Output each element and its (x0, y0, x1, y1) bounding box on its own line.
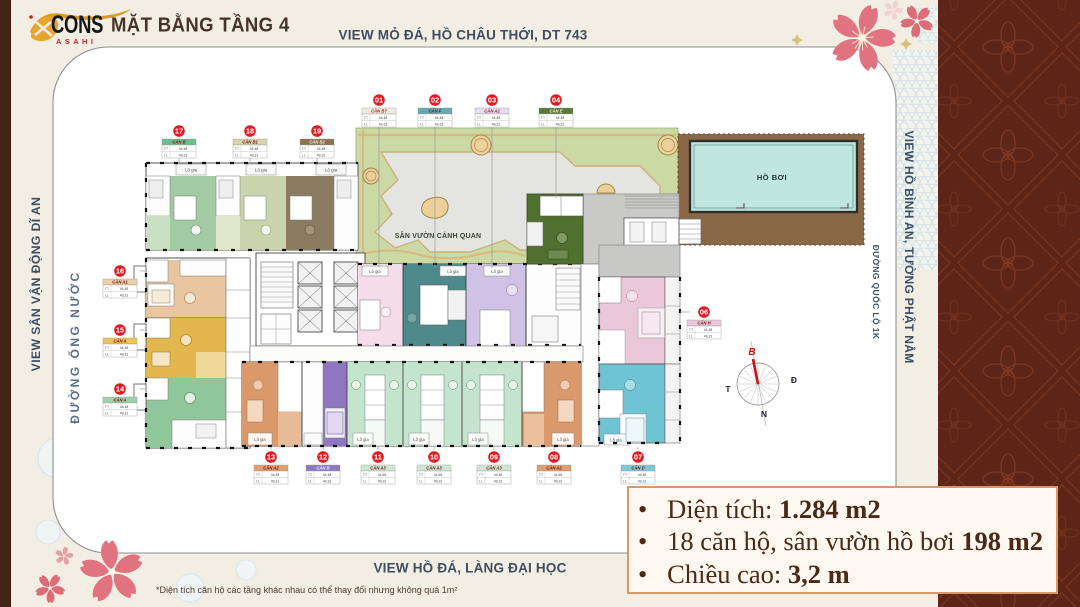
svg-text:Đ: Đ (791, 375, 797, 385)
svg-text:LL: LL (308, 480, 312, 484)
svg-text:LL: LL (164, 154, 168, 158)
svg-text:44,48: 44,48 (554, 473, 563, 477)
svg-text:LL: LL (689, 335, 693, 339)
svg-text:49,31: 49,31 (492, 123, 501, 127)
svg-text:TT: TT (164, 147, 168, 151)
svg-text:Lô gia: Lô gia (413, 437, 425, 442)
svg-text:49,31: 49,31 (120, 353, 129, 357)
svg-text:CĂN A1: CĂN A1 (112, 280, 128, 285)
svg-text:CĂN A3: CĂN A3 (486, 466, 502, 471)
svg-text:TT: TT (302, 147, 306, 151)
svg-text:N: N (761, 409, 767, 419)
svg-text:44,48: 44,48 (492, 116, 501, 120)
svg-text:12: 12 (319, 453, 327, 462)
svg-text:TT: TT (689, 328, 693, 332)
svg-text:06: 06 (700, 308, 708, 317)
svg-text:49,31: 49,31 (435, 123, 444, 127)
svg-text:Lô gia: Lô gia (185, 168, 198, 173)
svg-text:44,48: 44,48 (250, 147, 259, 151)
svg-text:CĂN A: CĂN A (113, 339, 126, 344)
svg-text:TT: TT (539, 473, 543, 477)
svg-text:04: 04 (552, 96, 561, 105)
svg-text:CĂN E: CĂN E (549, 109, 562, 114)
svg-text:44,48: 44,48 (704, 328, 713, 332)
svg-text:44,48: 44,48 (435, 116, 444, 120)
svg-text:44,48: 44,48 (120, 287, 129, 291)
svg-text:HỒ BƠI: HỒ BƠI (757, 172, 787, 182)
svg-text:TT: TT (420, 116, 424, 120)
svg-text:13: 13 (267, 453, 275, 462)
svg-text:TT: TT (364, 116, 368, 120)
svg-text:CĂN A2: CĂN A2 (263, 466, 279, 471)
svg-text:44,48: 44,48 (179, 147, 188, 151)
svg-text:CĂN A3: CĂN A3 (370, 466, 386, 471)
svg-text:CĂN A: CĂN A (113, 398, 126, 403)
svg-text:49,31: 49,31 (323, 480, 332, 484)
svg-text:49,31: 49,31 (317, 154, 326, 158)
svg-text:SÂN VƯỜN CẢNH QUAN: SÂN VƯỜN CẢNH QUAN (395, 231, 482, 240)
svg-text:CĂN B?: CĂN B? (371, 109, 387, 114)
svg-text:CĂN A3: CĂN A3 (426, 466, 442, 471)
svg-text:LL: LL (235, 154, 239, 158)
svg-text:18: 18 (246, 127, 254, 136)
svg-text:TT: TT (541, 116, 545, 120)
svg-text:CĂN F: CĂN F (429, 109, 442, 114)
svg-text:49,31: 49,31 (704, 335, 713, 339)
svg-text:49,31: 49,31 (434, 480, 443, 484)
svg-text:CĂN B2: CĂN B2 (309, 140, 325, 145)
svg-text:TT: TT (308, 473, 312, 477)
svg-text:TT: TT (477, 116, 481, 120)
svg-text:Lô gia: Lô gia (472, 437, 484, 442)
svg-text:LL: LL (105, 412, 109, 416)
svg-text:CĂN B: CĂN B (172, 140, 185, 145)
svg-text:49,31: 49,31 (379, 123, 388, 127)
svg-text:44,48: 44,48 (378, 473, 387, 477)
svg-text:44,48: 44,48 (556, 116, 565, 120)
svg-text:44,48: 44,48 (638, 473, 647, 477)
svg-text:TT: TT (256, 473, 260, 477)
svg-text:44,48: 44,48 (120, 405, 129, 409)
svg-text:15: 15 (116, 326, 124, 335)
svg-text:T: T (725, 384, 731, 394)
svg-text:49,31: 49,31 (378, 480, 387, 484)
svg-text:08: 08 (550, 453, 558, 462)
svg-text:LL: LL (539, 480, 543, 484)
svg-text:TT: TT (623, 473, 627, 477)
svg-text:LL: LL (623, 480, 627, 484)
svg-text:44,48: 44,48 (323, 473, 332, 477)
svg-text:49,31: 49,31 (554, 480, 563, 484)
svg-text:LL: LL (477, 123, 481, 127)
svg-text:44,48: 44,48 (434, 473, 443, 477)
svg-text:TT: TT (419, 473, 423, 477)
svg-text:44,48: 44,48 (271, 473, 280, 477)
svg-text:02: 02 (431, 96, 439, 105)
svg-text:TT: TT (105, 405, 109, 409)
svg-text:LL: LL (479, 480, 483, 484)
svg-text:CĂN A2: CĂN A2 (484, 109, 500, 114)
svg-text:B: B (748, 347, 755, 358)
svg-text:LL: LL (105, 294, 109, 298)
svg-text:49,31: 49,31 (250, 154, 259, 158)
svg-text:17: 17 (175, 127, 183, 136)
svg-text:16: 16 (116, 267, 124, 276)
svg-text:LL: LL (420, 123, 424, 127)
svg-text:LL: LL (364, 123, 368, 127)
svg-text:TT: TT (363, 473, 367, 477)
svg-text:LL: LL (541, 123, 545, 127)
svg-text:44,48: 44,48 (379, 116, 388, 120)
svg-text:49,31: 49,31 (638, 480, 647, 484)
svg-text:49,31: 49,31 (494, 480, 503, 484)
svg-text:01: 01 (375, 96, 383, 105)
svg-text:Lô gia: Lô gia (255, 168, 268, 173)
svg-text:LL: LL (302, 154, 306, 158)
svg-text:LL: LL (105, 353, 109, 357)
svg-text:49,31: 49,31 (120, 294, 129, 298)
svg-text:10: 10 (430, 453, 438, 462)
svg-text:14: 14 (116, 385, 125, 394)
svg-text:Lô gia: Lô gia (557, 437, 569, 442)
svg-text:TT: TT (479, 473, 483, 477)
svg-text:CĂN B: CĂN B (316, 466, 329, 471)
svg-text:Lô gia: Lô gia (447, 269, 459, 274)
svg-text:44,48: 44,48 (317, 147, 326, 151)
svg-text:Lô gia: Lô gia (254, 437, 266, 442)
svg-text:11: 11 (374, 453, 382, 462)
svg-text:TT: TT (105, 287, 109, 291)
svg-text:Lô gia: Lô gia (369, 269, 381, 274)
svg-text:CĂN D: CĂN D (631, 466, 644, 471)
svg-text:44,48: 44,48 (120, 346, 129, 350)
svg-text:49,31: 49,31 (271, 480, 280, 484)
svg-text:49,31: 49,31 (179, 154, 188, 158)
svg-text:Lô gia: Lô gia (325, 168, 338, 173)
svg-text:TT: TT (105, 346, 109, 350)
svg-text:LL: LL (256, 480, 260, 484)
svg-text:Lô gia: Lô gia (610, 438, 622, 443)
svg-text:49,31: 49,31 (120, 412, 129, 416)
svg-text:49,31: 49,31 (556, 123, 565, 127)
svg-text:CĂN A2: CĂN A2 (546, 466, 562, 471)
svg-text:19: 19 (313, 127, 321, 136)
svg-text:CĂN H: CĂN H (697, 321, 711, 326)
svg-text:09: 09 (490, 453, 498, 462)
svg-text:03: 03 (488, 96, 496, 105)
svg-text:LL: LL (419, 480, 423, 484)
svg-text:44,48: 44,48 (494, 473, 503, 477)
svg-text:TT: TT (235, 147, 239, 151)
svg-text:Lô gia: Lô gia (491, 269, 503, 274)
svg-text:07: 07 (634, 453, 642, 462)
svg-text:LL: LL (363, 480, 367, 484)
svg-text:Lô gia: Lô gia (357, 437, 369, 442)
svg-text:CĂN B1: CĂN B1 (242, 140, 258, 145)
